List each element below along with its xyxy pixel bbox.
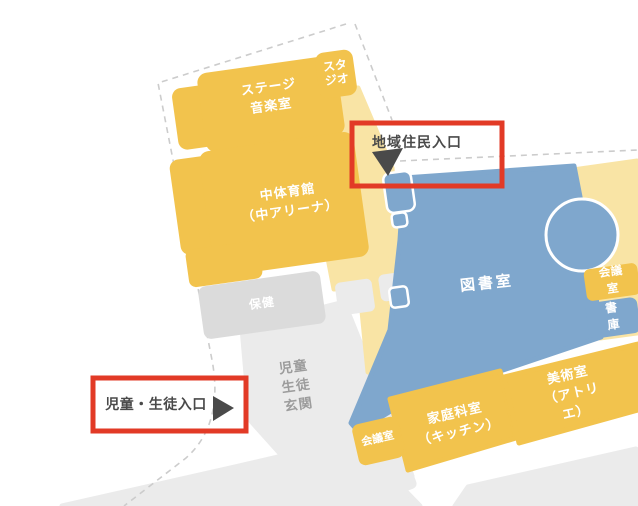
stacks-shape — [585, 297, 638, 340]
hall-blue-block — [389, 286, 410, 308]
school-floor-plan: ステージ 音楽室 スタ ジオ 中体育館 （中アリーナ） 保健 図書室 会議室 書… — [0, 0, 638, 506]
community-vestibule-2 — [391, 212, 408, 228]
students-entrance-arrow-icon — [213, 396, 234, 421]
southeast-ground — [455, 449, 636, 506]
community-vestibule — [382, 170, 415, 214]
entrance-hall-pad — [335, 279, 375, 316]
community-entrance-label: 地域住民入口 — [372, 132, 462, 152]
studio-shape — [314, 49, 358, 100]
library-reading-circle — [546, 199, 618, 271]
students-entrance-label: 児童・生徒入口 — [105, 394, 207, 414]
floor-plan-canvas — [0, 0, 638, 506]
